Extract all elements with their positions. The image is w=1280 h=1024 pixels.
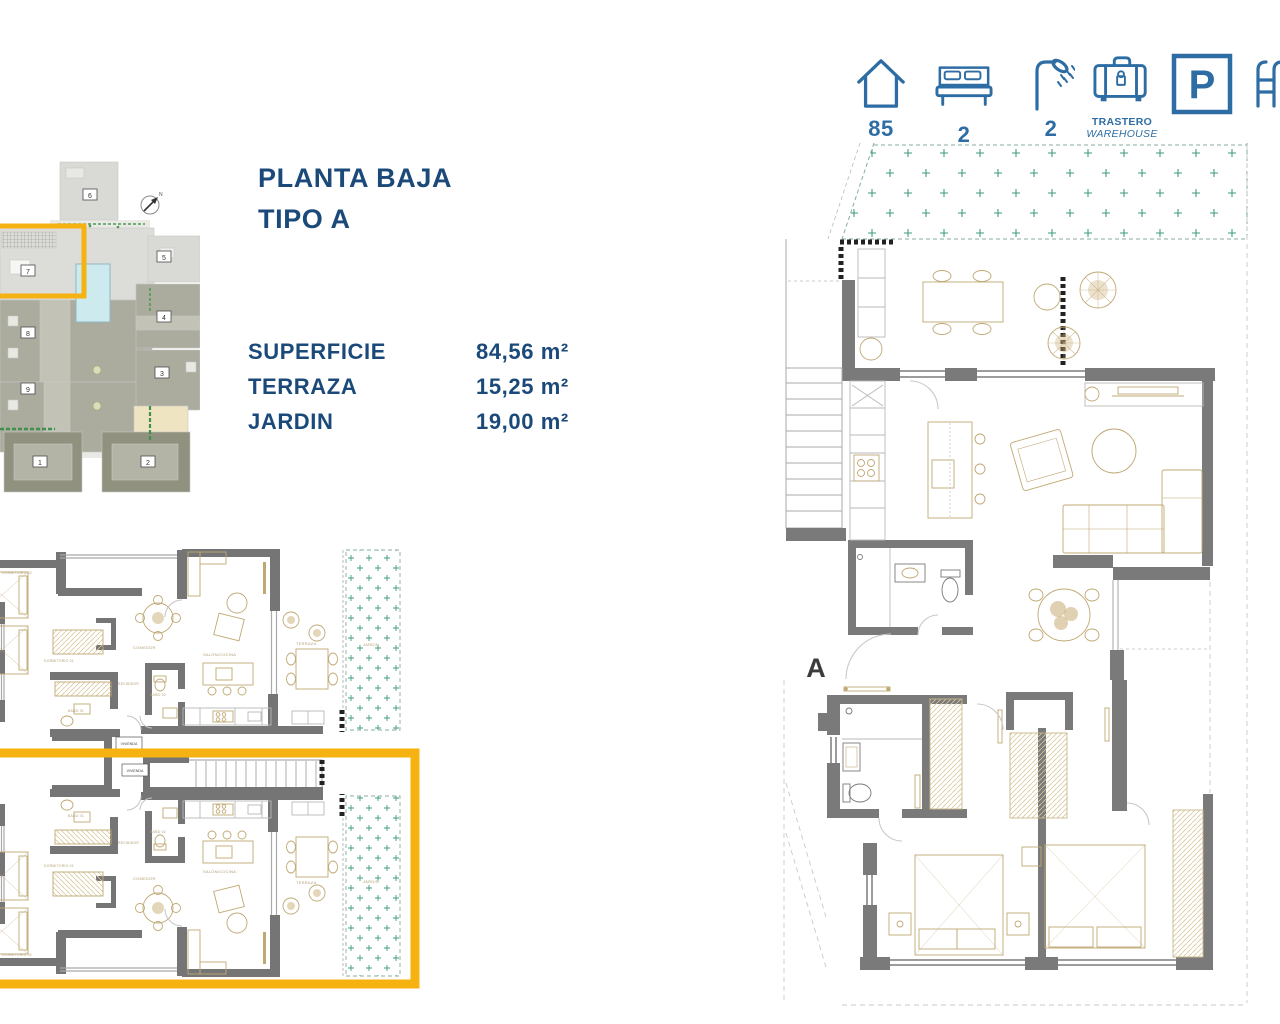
pool-icon [1250, 54, 1280, 114]
apartment-walls [842, 368, 1215, 680]
site-plan-map: N 1 2 3 4 5 6 7 8 9 [0, 148, 200, 498]
surface-value: 85 [852, 116, 910, 142]
area-value: 15,25 m² [476, 374, 569, 399]
room-label: COMEDOR [133, 876, 156, 881]
areas-table: SUPERFICIE84,56 m² TERRAZA15,25 m² JARDI… [248, 334, 569, 439]
feature-storage: TRASTERO WAREHOUSE [1086, 52, 1158, 140]
apartment-unit-plan [0, 549, 400, 737]
house-icon [854, 54, 908, 112]
room-label: JARDIN [363, 879, 379, 884]
compass-north-label: N [159, 192, 163, 198]
shower-icon [1027, 54, 1075, 112]
room-label: DORMITORIO 01 [44, 659, 74, 663]
area-label: TERRAZA [248, 369, 476, 404]
parking-letter: P [1189, 63, 1216, 107]
page-title: PLANTA BAJA TIPO A [258, 158, 452, 240]
room-label: COMEDOR [133, 645, 156, 650]
parking-icon: P [1171, 53, 1233, 115]
site-unit-label: 7 [26, 269, 30, 276]
living-furniture [1010, 429, 1202, 553]
feature-surface: 85 [852, 54, 910, 142]
room-label: JARDIN [363, 642, 379, 647]
room-label: BAÑO 02 [150, 829, 166, 834]
brochure-page: 85 2 [0, 0, 1280, 1024]
building-floor-plans-overview: VIVIENDA VIVIENDA DORMITORIO 02 DORMITOR… [0, 532, 442, 1012]
room-label: TERRAZA [296, 880, 317, 885]
unit-windows [2, 555, 277, 700]
kitchen-island [928, 422, 985, 518]
unit-a-floor-plan: A [782, 143, 1260, 1017]
site-unit-label: 2 [146, 460, 150, 467]
room-label: SALÓN/COCINA [203, 652, 236, 657]
unit-furniture [0, 552, 338, 726]
site-unit-label: 4 [162, 315, 166, 322]
area-value: 84,56 m² [476, 339, 569, 364]
room-label: DORMITORIO 02 [2, 571, 32, 575]
feature-parking: P [1170, 53, 1234, 115]
title-line-1: PLANTA BAJA [258, 158, 452, 199]
site-unit-label: 8 [26, 331, 30, 338]
feature-bathrooms: 2 [1026, 54, 1076, 142]
area-label: JARDIN [248, 404, 476, 439]
feature-bedrooms: 2 [934, 64, 994, 148]
storage-label-es: TRASTERO [1086, 116, 1158, 128]
site-unit-label: 9 [26, 387, 30, 394]
room-label: RECIBIDOR [118, 841, 139, 845]
tv-sideboard [1085, 383, 1203, 406]
bed-icon [935, 64, 993, 110]
warehouse-icon [1088, 52, 1156, 110]
bedroom-furniture [889, 845, 1145, 955]
block-label: A [806, 653, 826, 683]
room-label: BAÑO 02 [150, 692, 166, 697]
terrace-area [842, 249, 1116, 375]
site-unit-label: 3 [160, 371, 164, 378]
site-unit-label: 5 [162, 255, 166, 262]
room-label: SALÓN/COCINA [203, 869, 236, 874]
bathrooms-value: 2 [1026, 116, 1076, 142]
vivienda-tag: VIVIENDA [121, 742, 138, 746]
room-label: RECIBIDOR [118, 682, 139, 686]
unit-kitchen [183, 708, 324, 725]
bathroom-2 [851, 548, 960, 627]
room-label: DORMITORIO 01 [44, 864, 74, 868]
vivienda-tag: VIVIENDA [127, 769, 144, 773]
site-unit-label: 1 [38, 460, 42, 467]
room-label: TERRAZA [296, 641, 317, 646]
storage-label-en: WAREHOUSE [1086, 128, 1158, 140]
room-label: BAÑO 01 [68, 708, 84, 713]
patio-dining [1029, 580, 1210, 650]
compass-icon: N [141, 192, 163, 214]
fence-markers [840, 242, 1063, 368]
kitchen [850, 381, 885, 540]
room-label: BAÑO 01 [68, 813, 84, 818]
site-unit-label: 6 [88, 193, 92, 200]
area-row-jardin: JARDIN19,00 m² [248, 404, 569, 439]
room-label: DORMITORIO 02 [2, 953, 32, 957]
unit-walls [0, 549, 323, 737]
area-row-superficie: SUPERFICIE84,56 m² [248, 334, 569, 369]
area-label: SUPERFICIE [248, 334, 476, 369]
stair-core [52, 735, 323, 794]
garden-area [828, 143, 1247, 239]
area-value: 19,00 m² [476, 409, 569, 434]
title-line-2: TIPO A [258, 199, 452, 240]
unit-garden [342, 550, 400, 732]
area-row-terraza: TERRAZA15,25 m² [248, 369, 569, 404]
exterior-stairs [786, 239, 891, 731]
feature-pool [1250, 54, 1280, 116]
